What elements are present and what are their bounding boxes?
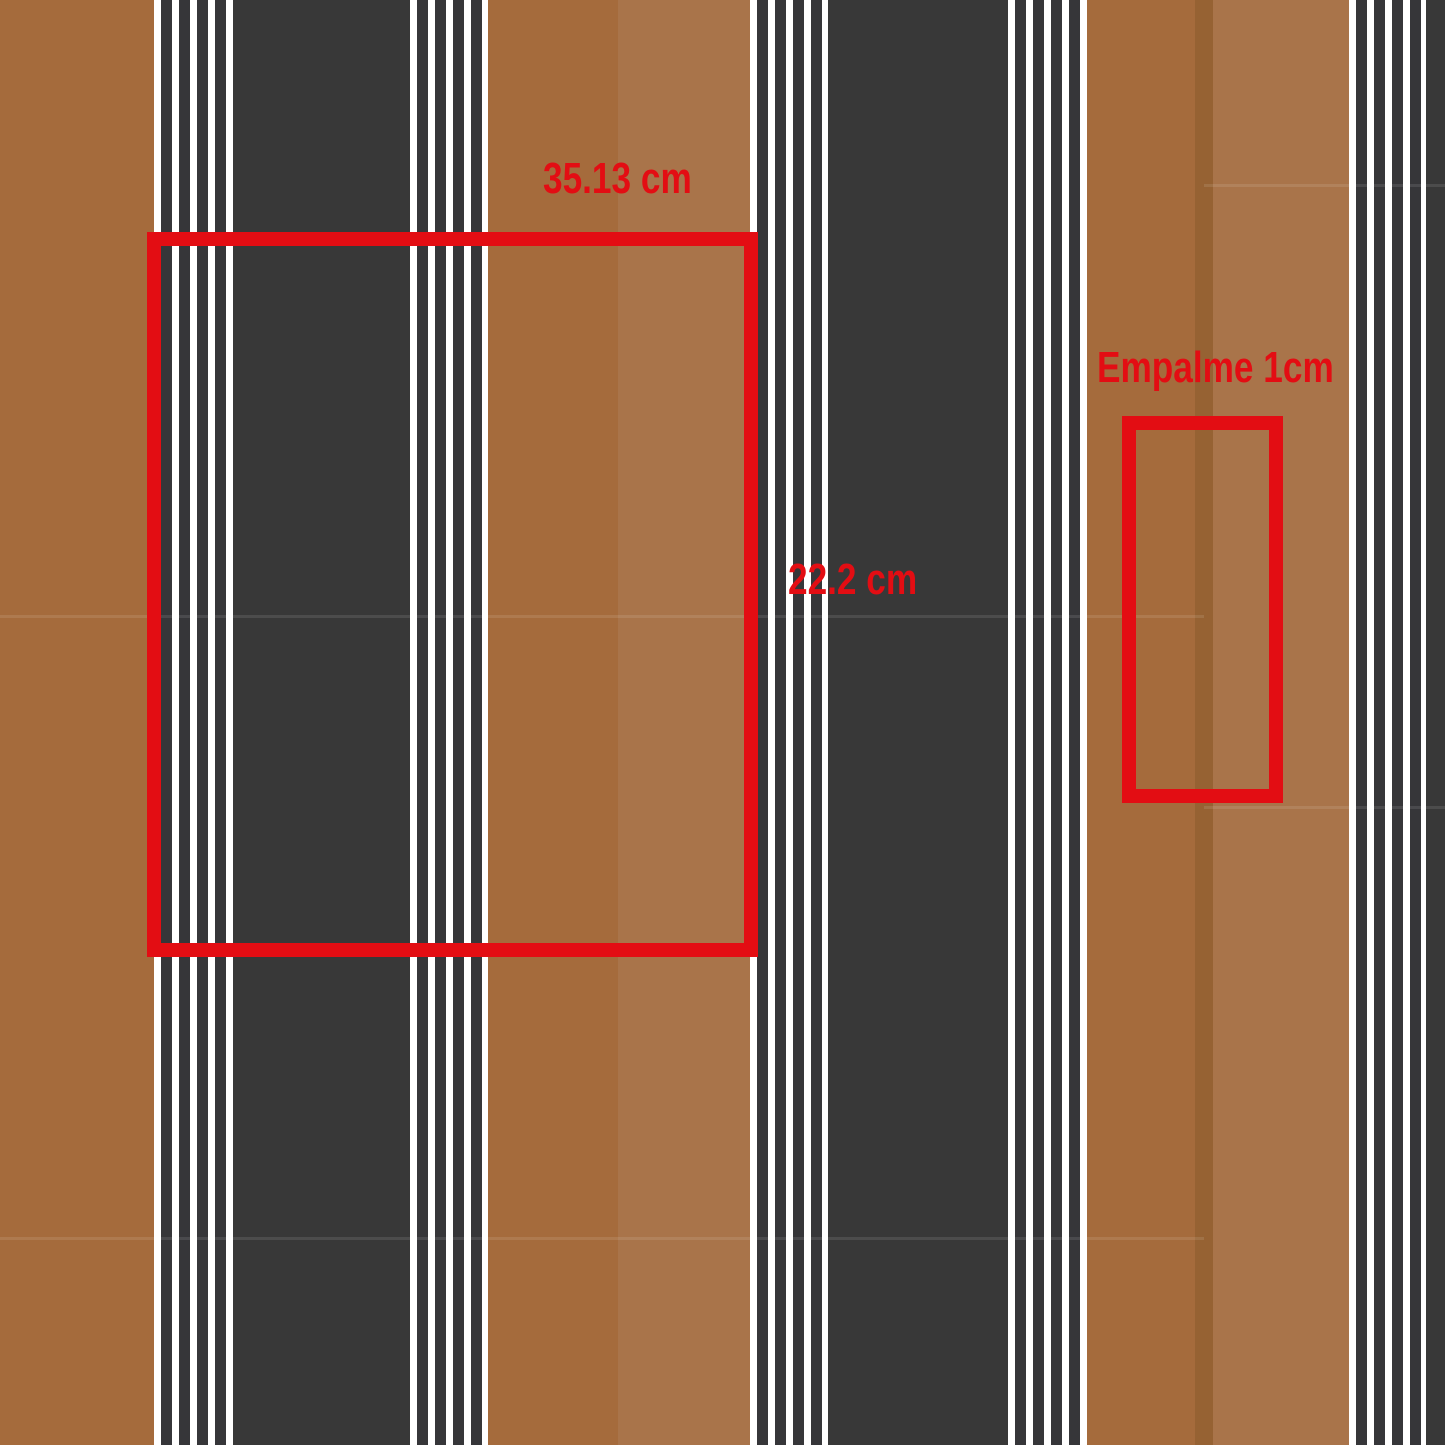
wallpaper-pattern-swatch: 35.13 cm 22.2 cm Empalme 1cm [0,0,1445,1445]
repeat-height-label: 22.2 cm [788,558,917,602]
brown-band-left [0,0,154,1445]
splice-measure-rectangle [1122,416,1283,803]
charcoal-band-2 [828,0,1008,1445]
repeat-measure-rectangle [147,232,758,957]
pinstripe-group-4 [1008,0,1087,1445]
charcoal-band-right [1426,0,1445,1445]
pinstripe-group-3 [750,0,828,1445]
repeat-width-label: 35.13 cm [543,157,692,201]
pinstripe-group-5 [1349,0,1426,1445]
splice-label: Empalme 1cm [1097,346,1334,390]
